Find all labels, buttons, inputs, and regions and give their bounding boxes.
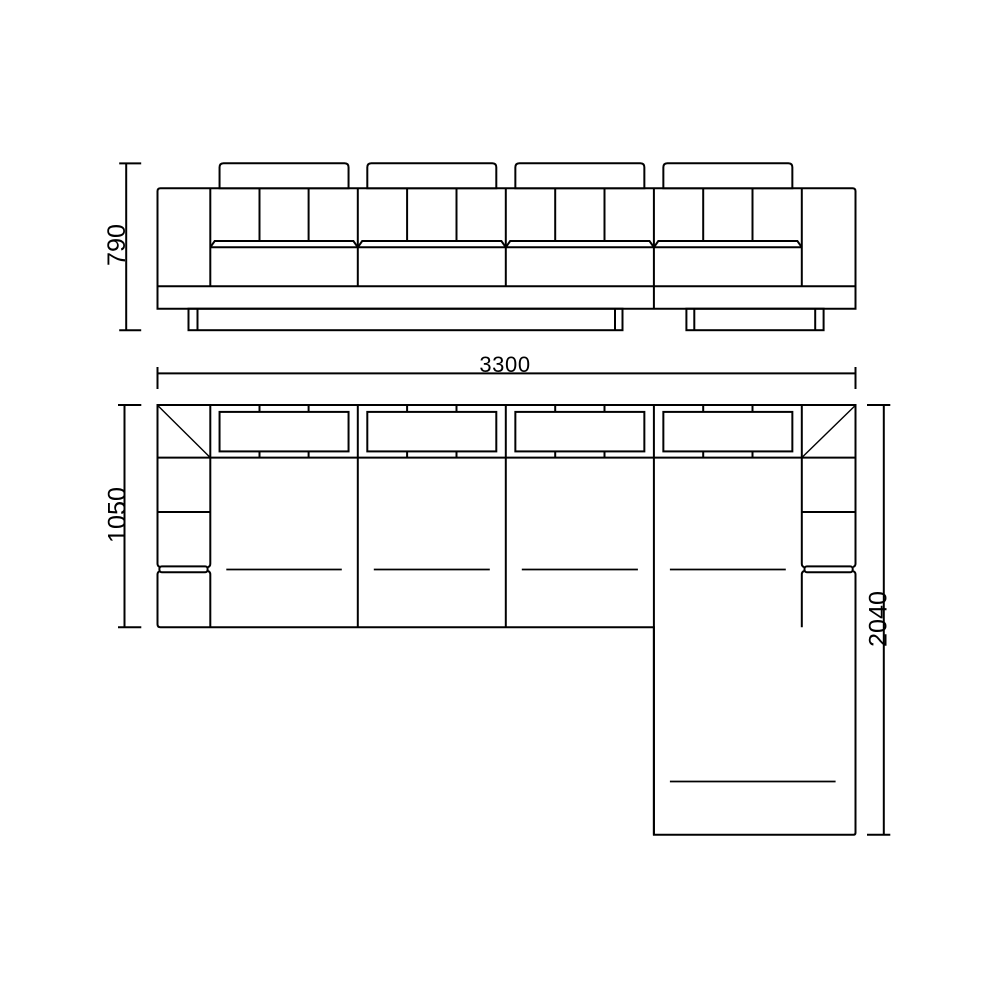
svg-text:790: 790: [103, 224, 131, 266]
svg-text:2040: 2040: [864, 591, 892, 647]
svg-text:1050: 1050: [103, 487, 131, 543]
svg-text:3300: 3300: [479, 352, 530, 377]
